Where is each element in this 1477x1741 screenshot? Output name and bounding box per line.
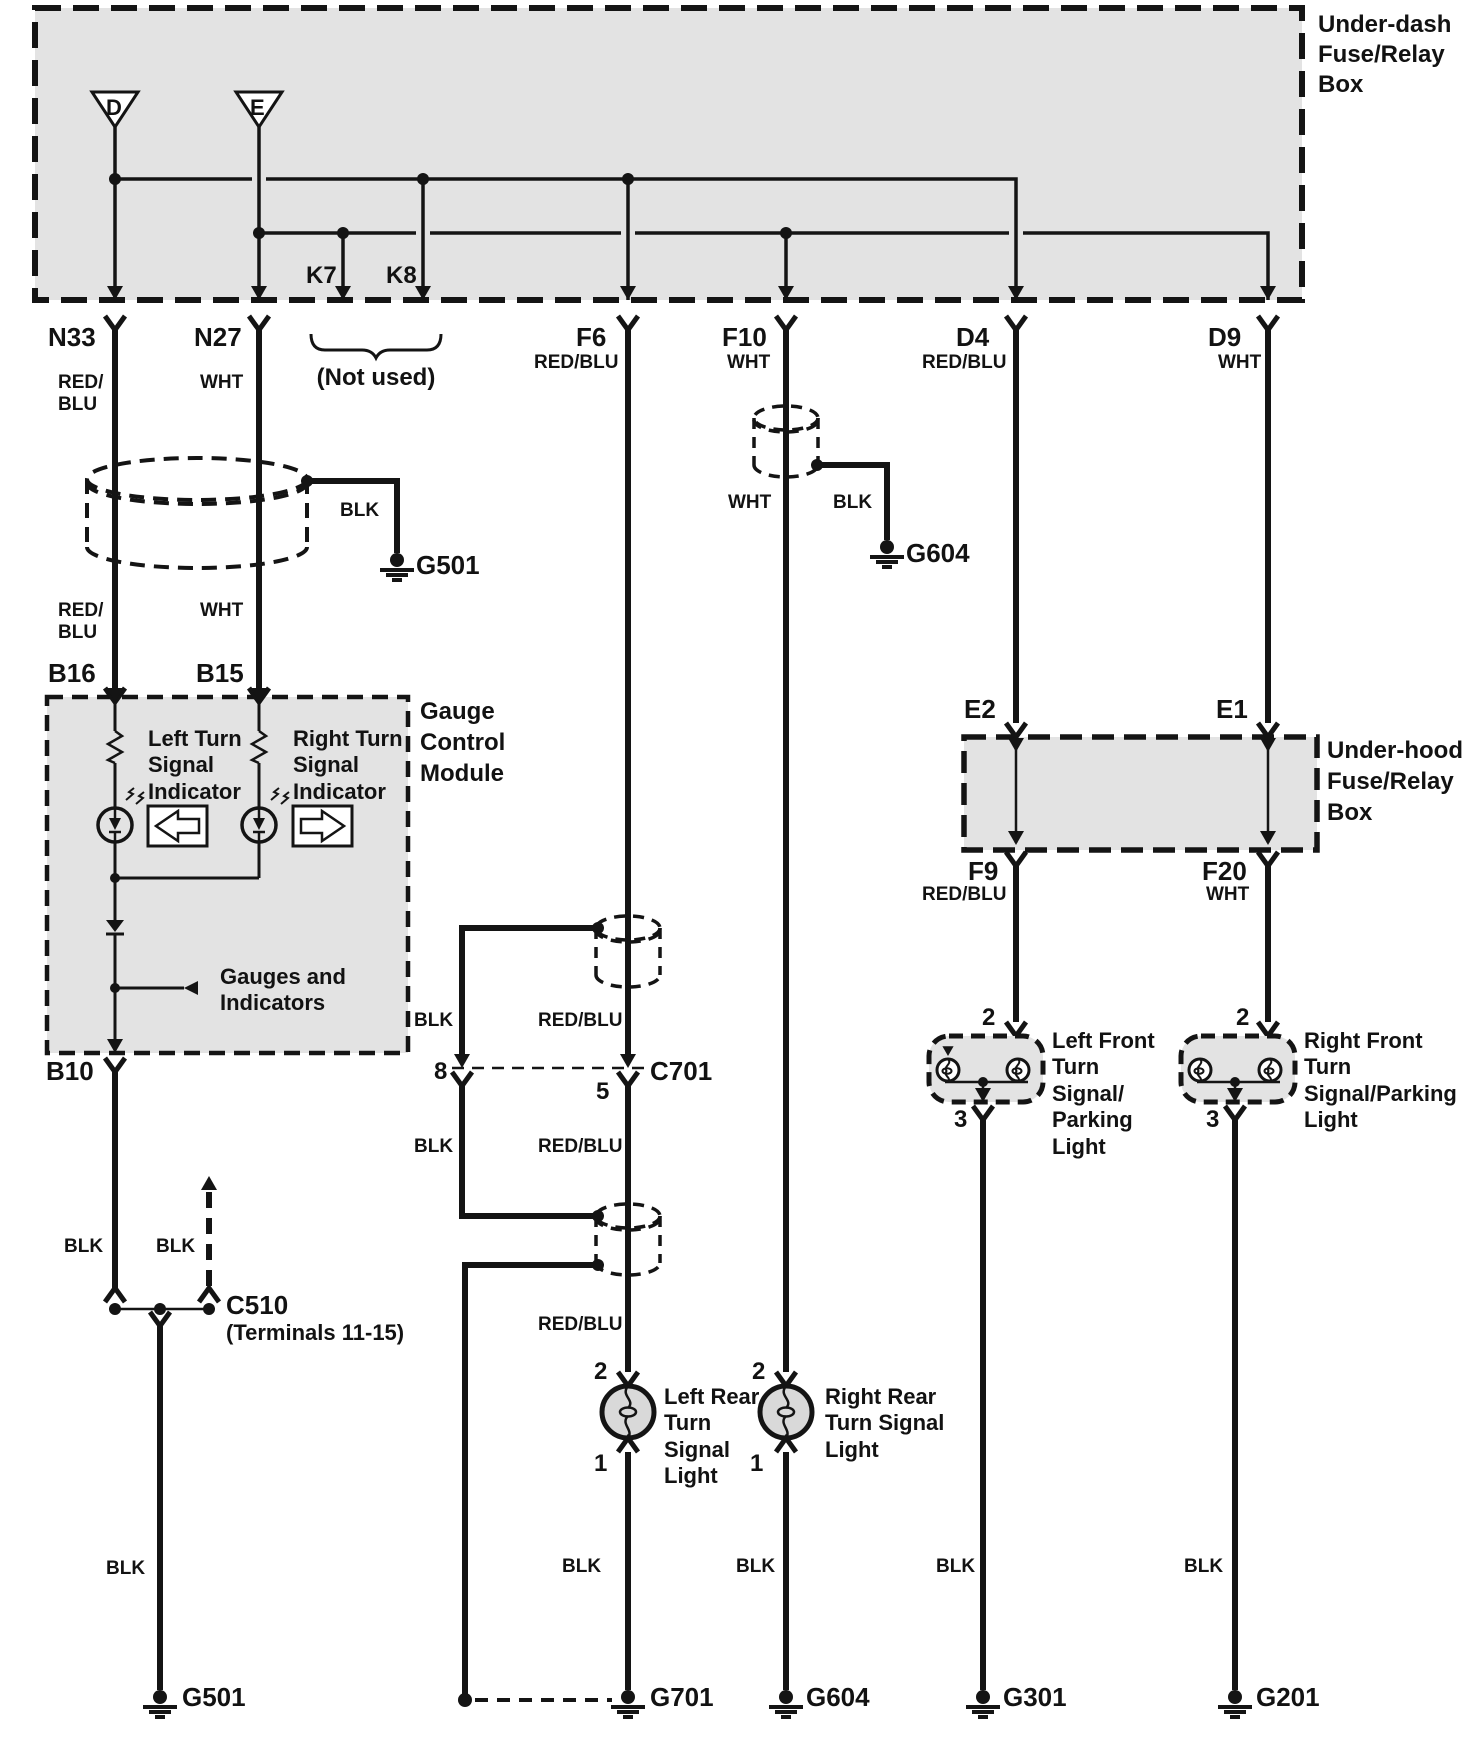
terminal-n33-label: N33 [48,322,96,353]
right-arrow-indicator-icon [293,806,352,846]
g501-upper-label: G501 [416,550,480,581]
exit-connector-forks [105,316,1278,330]
right-rear-bulb-icon [760,1386,812,1438]
g501-lower-ground-icon [143,1690,177,1717]
terminal-n27-label: N27 [194,322,242,353]
g604-tap-wire-color: BLK [833,492,872,514]
terminal-f10-label: F10 [722,322,767,353]
source-e-label: E [250,95,265,121]
g701-wire-color: BLK [562,1556,601,1578]
left-front-parking-bulb-icon [937,1059,959,1081]
g201-ground-icon [1218,1690,1252,1717]
f6-wire-color: RED/BLU [534,352,618,374]
not-used-brace-icon [311,334,441,358]
left-turn-indicator-label: Left Turn Signal Indicator [148,726,242,805]
terminal-k7-label: K7 [306,262,337,291]
wiring-diagram-page: Under-dash Fuse/Relay Box D E K7 K8 N33 … [0,0,1477,1741]
terminal-b16-label: B16 [48,658,96,689]
g701-label: G701 [650,1682,714,1713]
right-front-pin3-label: 3 [1206,1106,1219,1135]
c510-right-fork [199,1288,219,1302]
source-d-label: D [106,95,122,121]
right-front-light-label: Right Front Turn Signal/Parking Light [1304,1028,1457,1134]
g201-label: G201 [1256,1682,1320,1713]
g501-lower-label: G501 [182,1682,246,1713]
under-dash-fuse-relay-box [35,8,1302,300]
redblu-lower-wire-color: RED/BLU [538,1136,622,1158]
right-front-signal-bulb-icon [1259,1059,1281,1081]
c701-pin8-arrow [454,1054,470,1068]
g604-upper-ground-icon [870,540,904,567]
g201-wire-color: BLK [1184,1556,1223,1578]
right-rear-pin1-label: 1 [750,1450,763,1479]
c701-pin5-wire-color: RED/BLU [538,1010,622,1032]
g301-wire-color: BLK [936,1556,975,1578]
c701-pin5-fork [618,1072,638,1086]
b16-wire-color: RED/ BLU [58,600,103,645]
b10-wire-color: BLK [64,1236,103,1258]
g301-ground-icon [966,1690,1000,1717]
right-front-parking-bulb-icon [1189,1059,1211,1081]
gauges-indicators-label: Gauges and Indicators [220,964,346,1017]
g501-upper-ground-icon [380,553,414,580]
terminal-f6-label: F6 [576,322,606,353]
f10-wire-color: WHT [727,352,770,374]
blk-branch-arrow [201,1176,217,1190]
g701-ground-icon [611,1690,645,1717]
coil-tap-dot [301,475,313,487]
c701-pin5-label: 5 [596,1078,609,1107]
blk-lower-wire-color: BLK [414,1136,453,1158]
coil-tap-wire-color: BLK [340,500,379,522]
terminal-e1-label: E1 [1216,694,1248,725]
terminal-f9-label: F9 [968,856,998,887]
left-front-lamp-ground-fork [973,1106,993,1120]
c701-label: C701 [650,1056,712,1087]
left-front-light-label: Left Front Turn Signal/ Parking Light [1052,1028,1155,1160]
f20-wire-color: WHT [1206,884,1249,906]
under-dash-box-label: Under-dash Fuse/Relay Box [1318,10,1451,100]
c701-pin8-fork [452,1072,472,1086]
left-arrow-indicator-icon [148,806,207,846]
right-turn-indicator-label: Right Turn Signal Indicator [293,726,403,805]
right-rear-pin2-label: 2 [752,1358,765,1387]
g604-upper-label: G604 [906,538,970,569]
terminal-d4-label: D4 [956,322,989,353]
left-rear-bulb-bottom-fork [618,1438,638,1452]
f10-coil-dot [811,459,823,471]
terminal-e2-label: E2 [964,694,996,725]
right-front-lamp [1181,1036,1295,1102]
c701-pin8-wire-color: BLK [414,1010,453,1032]
f10-lower-wire-color: WHT [728,492,771,514]
f20-fork [1258,852,1278,866]
left-rear-pin1-label: 1 [594,1450,607,1479]
right-front-pin2-label: 2 [1236,1004,1249,1033]
right-front-lamp-ground-fork [1225,1106,1245,1120]
d4-wire-color: RED/BLU [922,352,1006,374]
g701-branch-dot [458,1693,472,1707]
g604-lower-label: G604 [806,1682,870,1713]
left-front-pin2-label: 2 [982,1004,995,1033]
n27-wire-color: WHT [200,372,243,394]
left-rear-wire-color: RED/BLU [538,1314,622,1336]
under-hood-box-label: Under-hood Fuse/Relay Box [1327,735,1463,829]
not-used-label: (Not used) [300,364,452,393]
c701-pin8-label: 8 [434,1058,447,1087]
c510-label: C510 [226,1290,288,1321]
terminal-f20-label: F20 [1202,856,1247,887]
terminal-d9-label: D9 [1208,322,1241,353]
g604-wire-color: BLK [736,1556,775,1578]
b10-ground-wires [115,1072,209,1690]
terminal-b10-label: B10 [46,1056,94,1087]
g501-wire-color: BLK [106,1558,145,1580]
c510-branch-wire-color: BLK [156,1236,195,1258]
terminal-k8-label: K8 [386,262,417,291]
c510-left-fork [105,1288,125,1302]
left-rear-pin2-label: 2 [594,1358,607,1387]
b10-fork [105,1058,125,1072]
g301-label: G301 [1003,1682,1067,1713]
g604-lower-ground-icon [769,1690,803,1717]
terminal-b15-label: B15 [196,658,244,689]
n33-wire-color: RED/ BLU [58,372,103,417]
b15-wire-color: WHT [200,600,243,622]
f10-wires [786,330,887,1690]
d9-wire-color: WHT [1218,352,1261,374]
left-rear-bulb-icon [602,1386,654,1438]
left-front-lamp [929,1036,1043,1102]
left-rear-light-label: Left Rear Turn Signal Light [664,1384,759,1490]
right-rear-bulb-bottom-fork [776,1438,796,1452]
f9-wire-color: RED/BLU [922,884,1006,906]
c510-note-label: (Terminals 11-15) [226,1320,404,1346]
left-front-pin3-label: 3 [954,1106,967,1135]
c701-pin5-arrow [620,1054,636,1068]
gauge-module-label: Gauge Control Module [420,696,505,790]
right-rear-light-label: Right Rear Turn Signal Light [825,1384,944,1463]
noise-suppressor-coil-icon [87,458,307,568]
f9-fork [1006,852,1026,866]
left-front-signal-bulb-icon [1007,1059,1029,1081]
